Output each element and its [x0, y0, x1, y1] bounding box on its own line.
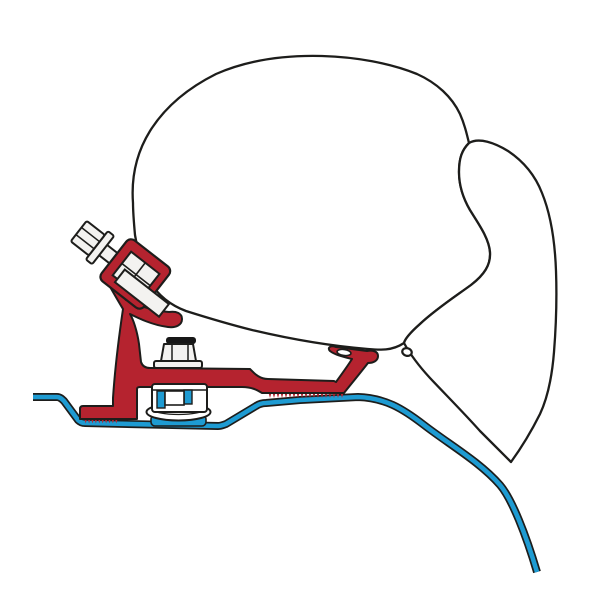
claw-blue-insert-left	[157, 391, 165, 408]
awning-adapter-drawing	[0, 0, 600, 600]
roof-clamp-claw	[147, 384, 211, 426]
claw-inner-block	[165, 391, 184, 405]
nut-cap	[166, 337, 196, 344]
nut-body	[161, 344, 196, 361]
claw-blue-insert-right	[184, 390, 192, 404]
nut-washer	[154, 361, 202, 368]
product-illustration	[0, 0, 600, 600]
awning-case-body	[133, 56, 490, 350]
